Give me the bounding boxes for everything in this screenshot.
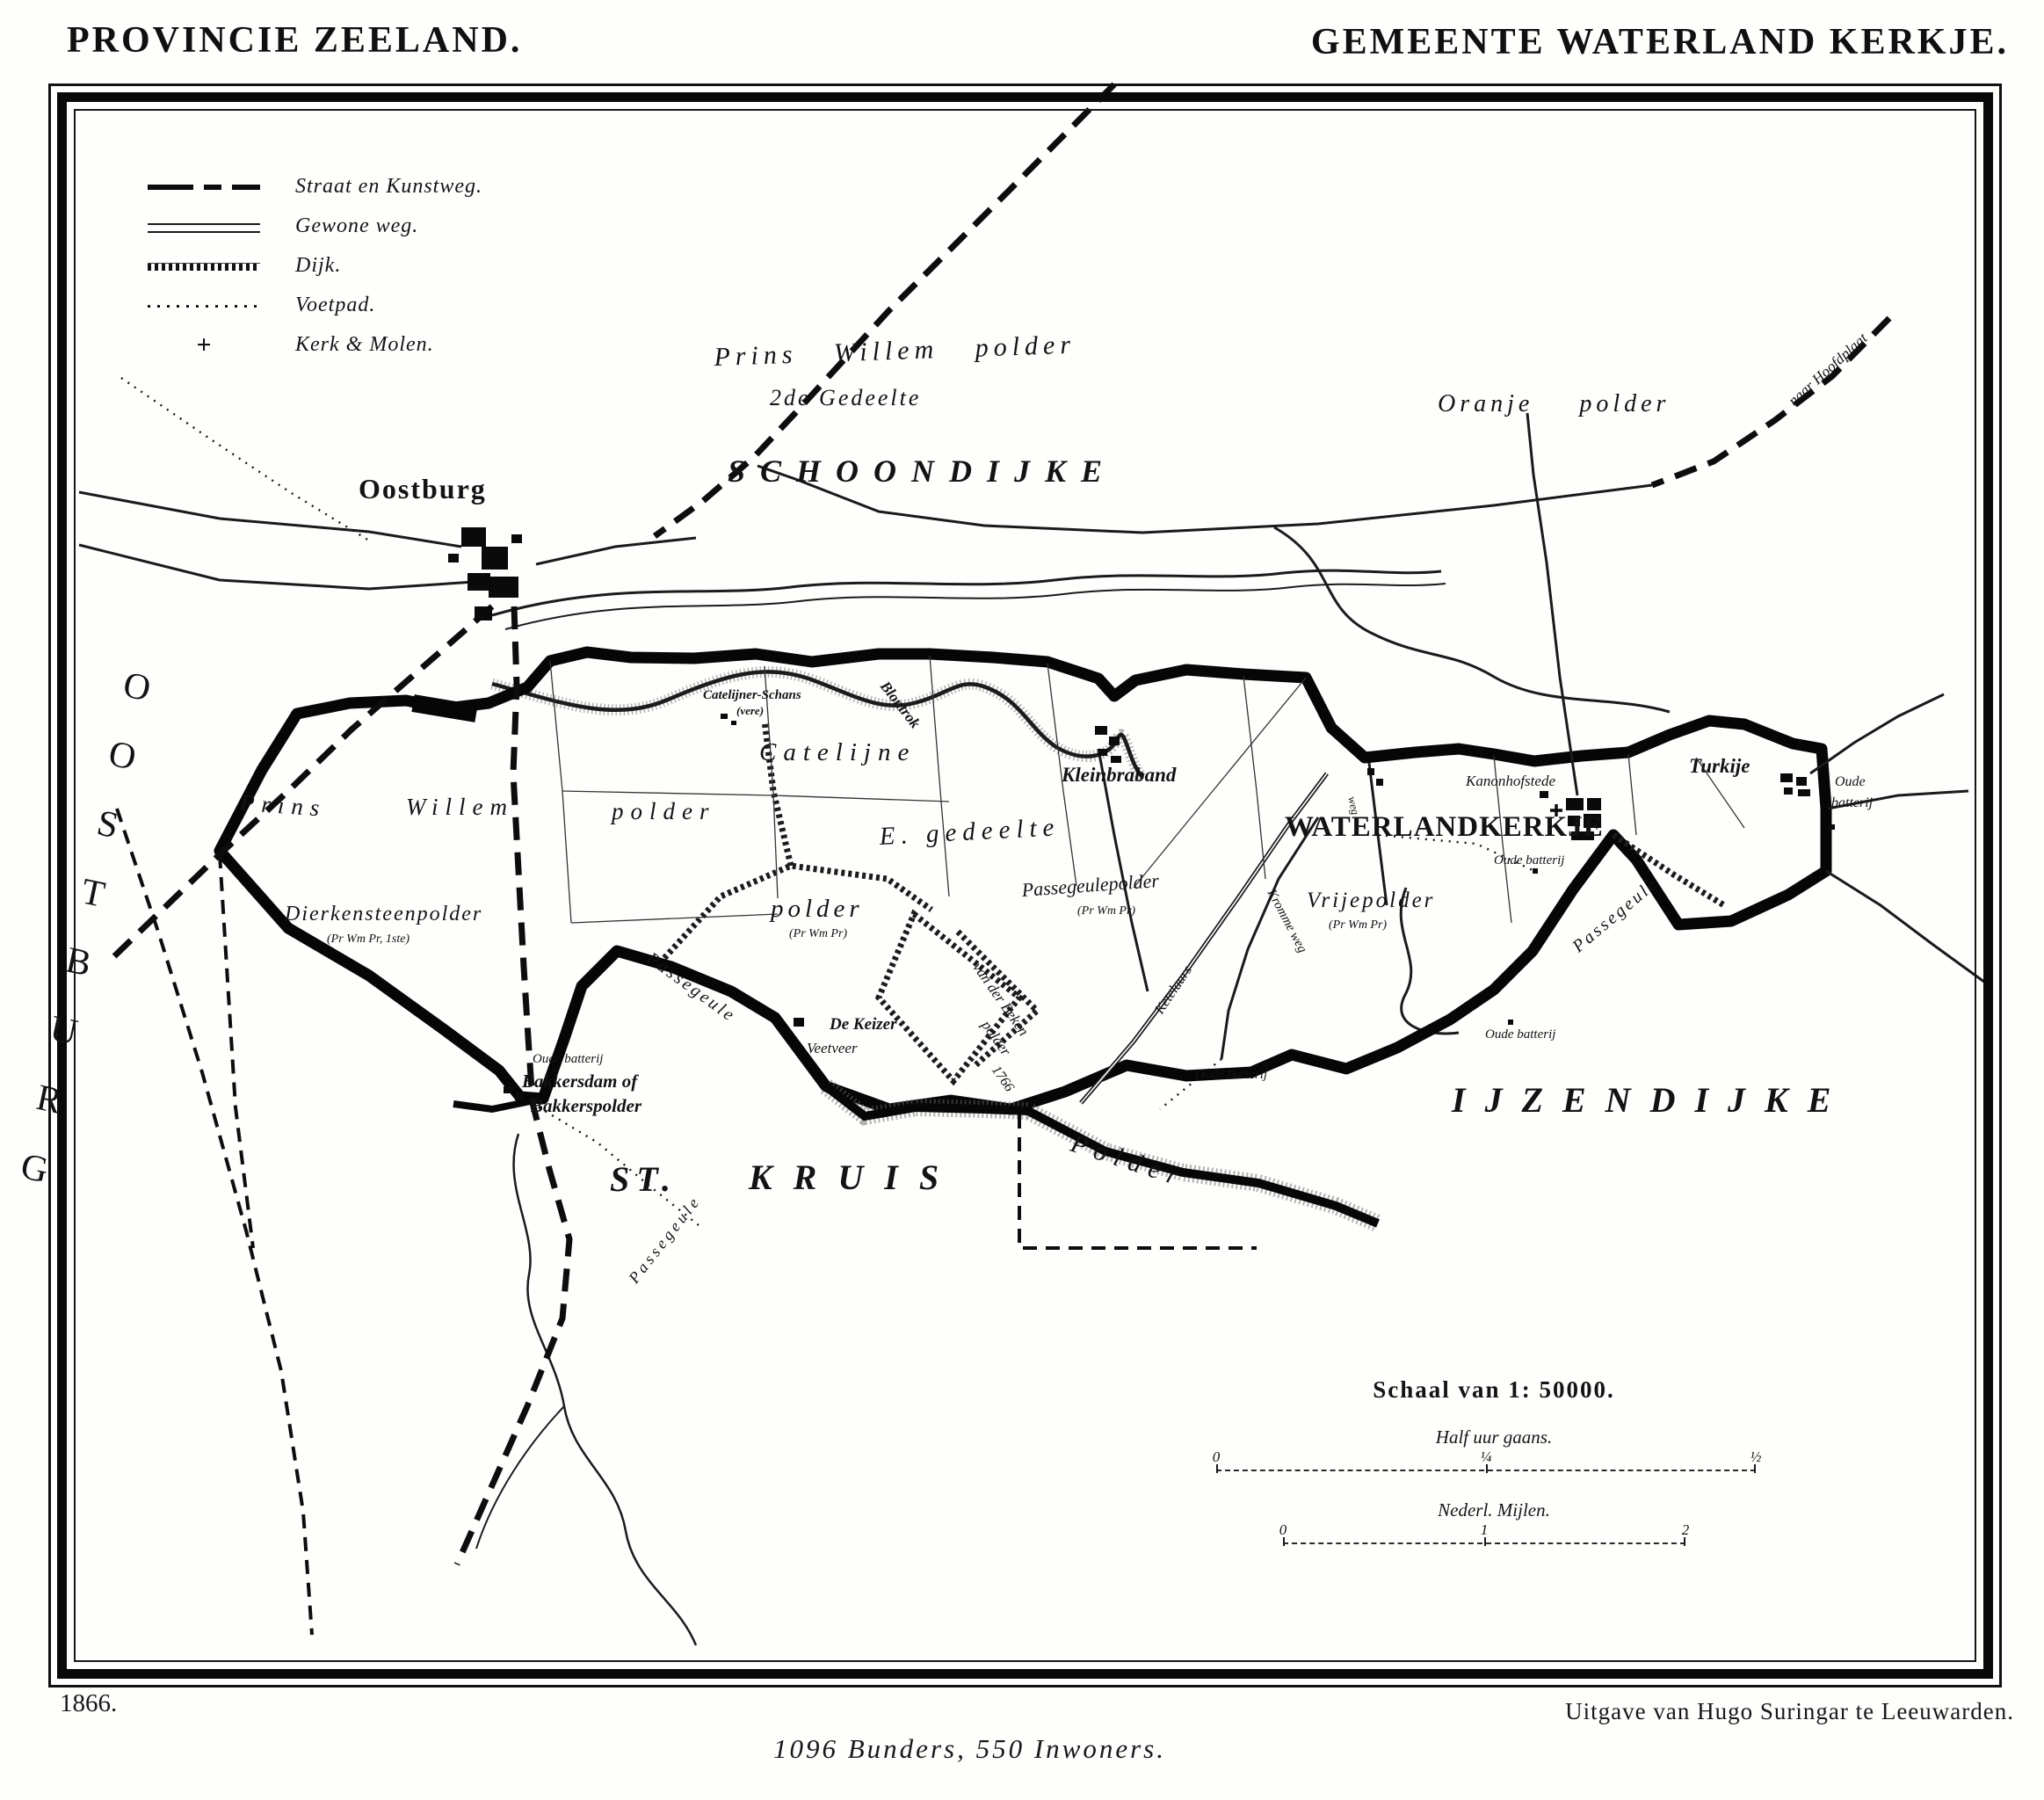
label-ijzendijke: IJZENDIJKE <box>1452 1083 1850 1118</box>
dotted-line-icon <box>148 300 260 312</box>
map-year: 1866. <box>60 1689 117 1718</box>
scale-title: Schaal van 1: 50000. <box>1204 1376 1784 1404</box>
label-kanonhofstede: Kanonhofstede <box>1466 773 1555 788</box>
label-catelijne-polder-sub: (Pr Wm Pr) <box>789 928 847 940</box>
label-veetveer: Veetveer <box>807 1041 858 1056</box>
legend-label: Gewone weg. <box>295 214 418 238</box>
footpaths <box>121 378 1533 1229</box>
legend-row-dijk: Dijk. <box>148 246 561 286</box>
scale-tick: ½ <box>1750 1448 1762 1466</box>
legend-label: Dijk. <box>295 254 341 278</box>
label-dierkensteenpolder: Dierkensteenpolder <box>285 904 482 925</box>
scale-tick: 0 <box>1213 1448 1221 1466</box>
scale-tick: 2 <box>1682 1521 1690 1539</box>
label-oude-batterij-east-1: Oude <box>1835 775 1866 789</box>
label-willem-left: Willem <box>406 795 514 819</box>
legend-row-voetpad: Voetpad. <box>148 286 561 325</box>
scale-tick: 1 <box>1481 1521 1489 1539</box>
statistics-line: 1096 Bunders, 550 Inwoners. <box>773 1733 1166 1765</box>
label-dierkensteenpolder-sub: (Pr Wm Pr, 1ste) <box>327 933 410 946</box>
label-oude-batterij-wlk: Oude batterij <box>1494 854 1564 867</box>
legend: Straat en Kunstweg. Gewone weg. Dijk. Vo… <box>148 167 561 365</box>
label-catelijner-schans: Catelijner-Schans <box>703 689 801 702</box>
label-oostburg-town: Oostburg <box>359 475 487 503</box>
label-weg: weg <box>1346 795 1361 816</box>
label-oude-batterij-bakkersdam: Oude batterij <box>533 1053 603 1066</box>
label-prins-left: Prins <box>239 791 327 821</box>
scale-bar-half-uur: 0 ¼ ½ <box>1216 1454 1756 1477</box>
south-creek-2 <box>476 1406 564 1549</box>
publisher-imprint: Uitgave van Hugo Suringar te Leeuwarden. <box>1565 1698 2014 1725</box>
cross-windmill-icon: + <box>148 339 260 352</box>
scale-bar-mijlen: 0 1 2 <box>1283 1527 1685 1550</box>
legend-row-kunstweg: Straat en Kunstweg. <box>148 167 561 207</box>
label-passegeulepolder-sub: (Pr Wm Pr) <box>1077 905 1135 918</box>
label-kleinbraband: Kleinbraband <box>1062 765 1176 785</box>
legend-row-gewone-weg: Gewone weg. <box>148 207 561 246</box>
bold-dashed-line-icon <box>148 181 260 193</box>
label-vrijepolder: Vrijepolder <box>1307 889 1435 911</box>
label-st: ST. <box>610 1162 678 1197</box>
legend-label: Straat en Kunstweg. <box>295 175 482 199</box>
scale-bar2-label: Nederl. Mijlen. <box>1204 1499 1784 1521</box>
scale-block: Schaal van 1: 50000. Half uur gaans. 0 ¼… <box>1204 1376 1784 1550</box>
label-kruis: KRUIS <box>749 1160 960 1195</box>
label-bakkerspolder: Bakkerspolder <box>531 1097 641 1115</box>
double-line-icon <box>148 221 260 233</box>
label-catelijne-polder: polder <box>771 896 864 922</box>
legend-label: Kerk & Molen. <box>295 333 434 357</box>
legend-row-kerk-molen: + Kerk & Molen. <box>148 325 561 365</box>
label-oude-batterij-sw: Oude Batterij <box>1195 1069 1267 1082</box>
hatched-line-icon <box>148 260 260 272</box>
label-tweede-gedeelte: 2de Gedeelte <box>770 387 921 410</box>
scale-tick: 0 <box>1279 1521 1287 1539</box>
scale-bar1-label: Half uur gaans. <box>1204 1426 1784 1448</box>
label-schoondijke: SCHOONDIJKE <box>728 455 1117 487</box>
scale-tick: ¼ <box>1481 1448 1492 1466</box>
label-catelijner-schans-sub: (vere) <box>736 705 764 716</box>
label-polder-left: polder <box>612 800 716 824</box>
label-oude-batterij-east-2: batterij <box>1831 796 1873 810</box>
legend-label: Voetpad. <box>295 294 375 317</box>
label-waterlandkerkje: WATERLANDKERKJE <box>1285 813 1604 842</box>
label-oude-batterij-mid: Oude batterij <box>1485 1028 1555 1042</box>
harbour-blob <box>413 703 476 714</box>
label-bakkersdam: Bakkersdam of <box>522 1072 637 1091</box>
label-de-keizer: De Keizer <box>830 1016 897 1033</box>
label-turkije: Turkije <box>1689 756 1750 776</box>
north-watercourse-2 <box>505 584 1446 629</box>
label-oranje-polder: Oranje polder <box>1438 392 1670 417</box>
south-creek <box>514 1134 696 1645</box>
label-vrijepolder-sub: (Pr Wm Pr) <box>1329 919 1387 932</box>
map-page: PROVINCIE ZEELAND. GEMEENTE WATERLAND KE… <box>0 0 2044 1800</box>
label-catelijne: Catelijne <box>759 740 916 766</box>
vrijepolder-creek <box>1274 527 1670 712</box>
